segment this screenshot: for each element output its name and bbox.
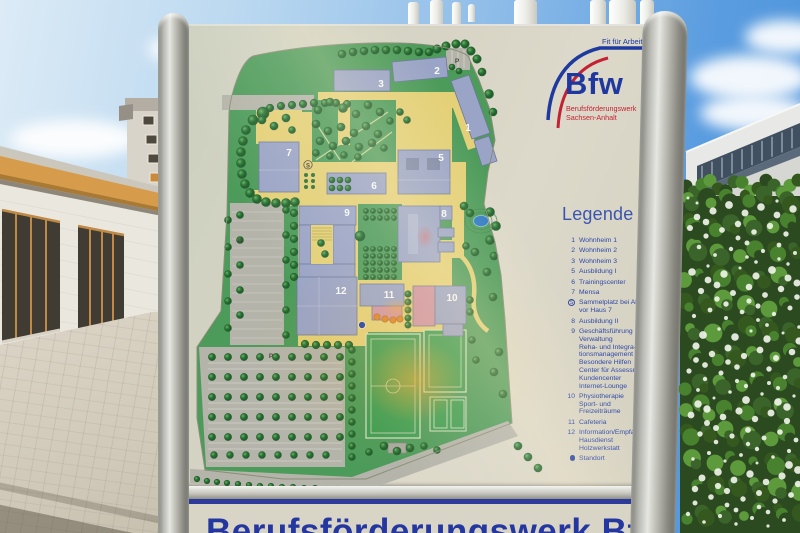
svg-text:12: 12 — [335, 286, 347, 297]
legend-item-key: 11 — [562, 419, 575, 427]
legend-item-key: 1 — [562, 237, 575, 245]
legend-item-key: 2 — [562, 247, 575, 255]
legend-item-key: 10 — [562, 393, 575, 416]
chimney-pipe — [430, 0, 443, 26]
bfw-logo: Fit für Arbeit Bfw Berufsförderungswerk … — [536, 36, 652, 138]
photo-of-campus-map-sign: 32175698121110PPPS Fit für Arbeit Bfw Be… — [0, 0, 800, 533]
svg-text:7: 7 — [286, 148, 292, 159]
assembly-point-icon: S — [568, 299, 575, 306]
chimney-pipe — [590, 0, 606, 27]
legend-item-key: 7 — [562, 289, 575, 297]
legend-item-key: 12 — [562, 429, 575, 452]
chimney-pipe — [468, 4, 475, 22]
svg-text:9: 9 — [344, 208, 350, 219]
legend-item-key: 9 — [562, 328, 575, 390]
legend-item-key: 5 — [562, 268, 575, 276]
location-dot-icon — [570, 455, 576, 461]
chimney-pipe — [452, 2, 461, 24]
legend-item-key: 3 — [562, 258, 575, 266]
legend-item-key: S — [562, 299, 575, 315]
svg-text:3: 3 — [378, 79, 384, 90]
svg-text:8: 8 — [441, 209, 447, 220]
svg-text:1: 1 — [465, 123, 471, 134]
svg-text:2: 2 — [434, 66, 440, 77]
bottom-banner: Berufsförderungswerk Bfw — [184, 499, 656, 533]
svg-text:10: 10 — [446, 293, 458, 304]
banner-text: Berufsförderungswerk Bfw — [206, 514, 656, 533]
logo-brand: Bfw — [565, 68, 623, 99]
svg-text:P: P — [269, 353, 274, 360]
sign-frame-bar — [184, 486, 656, 499]
legend-item-key: 6 — [562, 279, 575, 287]
sign-post-left — [158, 13, 189, 533]
legend-item-key: 8 — [562, 318, 575, 326]
logo-tagline: Fit für Arbeit — [602, 37, 642, 46]
svg-text:P: P — [238, 238, 243, 245]
legend-item-key — [562, 455, 575, 463]
chimney-pipe — [408, 2, 419, 24]
svg-text:S: S — [306, 163, 310, 169]
svg-text:P: P — [455, 58, 460, 65]
svg-text:11: 11 — [384, 290, 395, 301]
svg-text:5: 5 — [438, 153, 444, 164]
logo-subtitle: Berufsförderungswerk Sachsen-Anhalt — [566, 105, 636, 122]
sign-panel: 32175698121110PPPS Fit für Arbeit Bfw Be… — [184, 24, 656, 486]
svg-text:6: 6 — [371, 181, 377, 192]
